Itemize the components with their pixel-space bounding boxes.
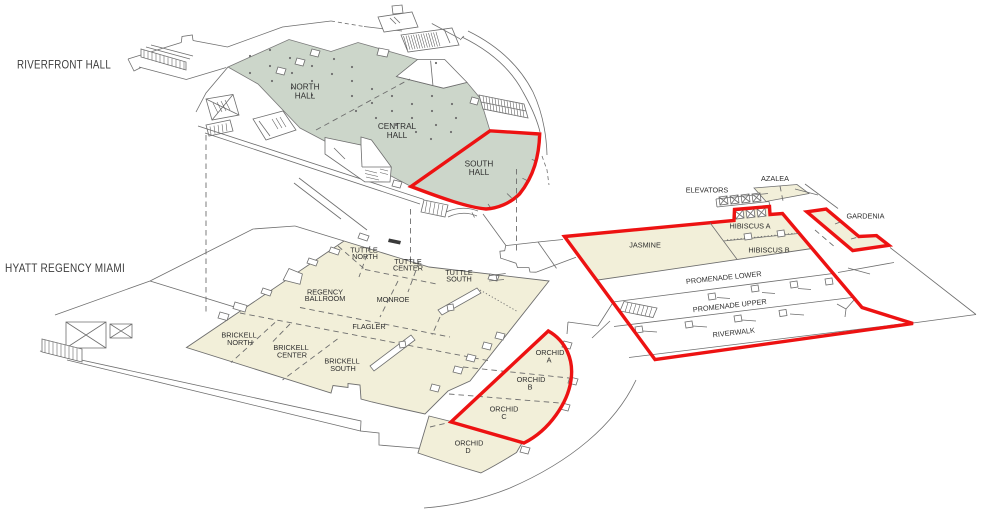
svg-text:JASMINE: JASMINE [629, 241, 661, 250]
svg-text:HALL: HALL [295, 91, 316, 100]
svg-text:HIBISCUS A: HIBISCUS A [730, 222, 771, 231]
svg-text:AZALEA: AZALEA [761, 174, 789, 183]
svg-text:SOUTH: SOUTH [446, 275, 472, 284]
svg-text:HALL: HALL [469, 168, 490, 177]
svg-text:GARDENIA: GARDENIA [846, 212, 884, 221]
svg-text:BALLROOM: BALLROOM [305, 294, 346, 303]
svg-text:NORTH: NORTH [291, 83, 320, 92]
svg-text:B: B [528, 383, 533, 392]
svg-text:D: D [465, 446, 470, 455]
svg-text:HYATT REGENCY MIAMI: HYATT REGENCY MIAMI [5, 262, 125, 275]
svg-text:RIVERFRONT HALL: RIVERFRONT HALL [17, 59, 111, 72]
svg-text:A: A [547, 356, 552, 365]
svg-text:HALL: HALL [387, 131, 408, 140]
svg-text:FLAGLER: FLAGLER [352, 322, 385, 331]
svg-text:MONROE: MONROE [377, 295, 410, 304]
svg-text:NORTH: NORTH [227, 338, 253, 347]
svg-text:CENTRAL: CENTRAL [378, 122, 417, 131]
svg-text:CENTER: CENTER [277, 351, 307, 360]
svg-text:CENTER: CENTER [393, 264, 423, 273]
svg-text:C: C [501, 412, 506, 421]
svg-text:SOUTH: SOUTH [330, 364, 356, 373]
svg-text:NORTH: NORTH [352, 252, 378, 261]
svg-text:ELEVATORS: ELEVATORS [686, 186, 729, 195]
svg-text:HIBISCUS B: HIBISCUS B [748, 246, 789, 255]
